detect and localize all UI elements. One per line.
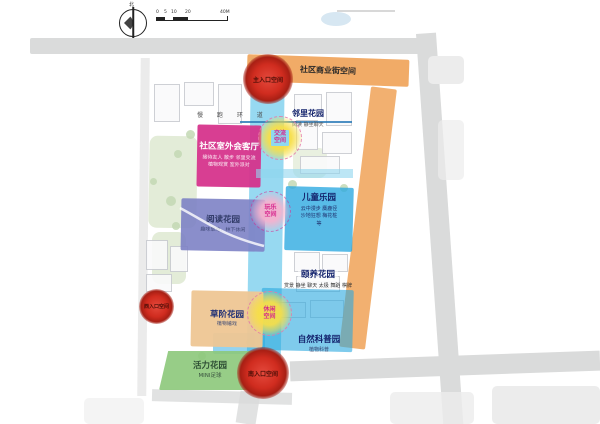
scale-bar-line (156, 20, 228, 21)
neighbor-garden-sub: 阅读 静坐聊天 (292, 122, 362, 130)
nature-garden-sub: 植物科普 (276, 347, 362, 355)
main-entrance-node: 主入口空间 (243, 54, 293, 104)
building-footprint (322, 132, 352, 154)
west-entrance-node: 西入口空间 (139, 289, 174, 324)
north-arrow-icon (119, 9, 147, 37)
south-entrance-node: 南入口空间 (237, 347, 289, 399)
grass-terrace-label: 草阶花园 (210, 310, 244, 321)
offsite-block (492, 386, 600, 424)
west-entrance-label: 西入口空间 (144, 303, 169, 310)
wellness-garden-sub: 赏景 静坐 聊天 太极 舞蹈 棋牌 (278, 283, 358, 291)
children-park-sub1: 云中漫步 麋鹿径 (287, 206, 351, 214)
scale-tick: 40M (220, 10, 230, 15)
outdoor-lounge-label: 社区室外会客厅 (199, 142, 259, 154)
scale-tick: 0 (156, 10, 159, 15)
road-left (137, 58, 150, 396)
children-park-label-group: 儿童乐园 云中漫步 麋鹿径 沙地狂想 梅花桩 等 (287, 193, 351, 228)
scale-bar: 0 5 10 20 40M (156, 10, 252, 24)
children-park-label: 儿童乐园 (287, 193, 351, 204)
offsite-block (390, 392, 474, 424)
building-footprint (184, 82, 214, 106)
building-footprint (154, 84, 180, 122)
road-top (30, 38, 428, 54)
neighbor-garden-label-group: 邻里花园 阅读 静坐聊天 (292, 109, 362, 130)
offsite-block (84, 398, 144, 424)
tree (174, 150, 182, 158)
scale-bar-segment (173, 17, 188, 21)
zone-outdoor-lounge: 社区室外会客厅 接待友人 散步 邻里交流 植物观赏 室外派对 (196, 124, 261, 187)
nature-garden-label: 自然科普园 (276, 335, 362, 346)
commercial-street-label: 社区商业街空间 (300, 65, 356, 77)
exchange-space-label: 交流 空间 (271, 130, 289, 146)
leisure-space-node: 休闲 空间 (247, 291, 292, 336)
scale-tick: 5 (164, 10, 167, 15)
vitality-garden-label: 活力花园 (193, 361, 227, 372)
grass-terrace-sub: 植物嬉戏 (217, 320, 237, 328)
tree (186, 130, 195, 139)
play-space-node: 玩乐 空间 (250, 191, 291, 232)
watermark-text (337, 10, 395, 12)
pond (321, 12, 351, 26)
scale-tick: 10 (171, 10, 177, 15)
scale-bar-segment (156, 17, 165, 21)
scale-bar-end (227, 16, 228, 21)
cross-corridor-link (256, 169, 353, 178)
scale-tick: 20 (185, 10, 191, 15)
offsite-block (438, 120, 464, 180)
jogging-loop-label: 慢 跑 环 道 (197, 110, 269, 119)
tree (150, 178, 157, 185)
offsite-block (428, 56, 464, 84)
vitality-garden-sub: MINI足球 (198, 372, 221, 380)
exchange-space-node: 交流 空间 (258, 116, 302, 160)
wellness-garden-label-group: 颐养花园 赏景 静坐 聊天 太极 舞蹈 棋牌 (278, 262, 358, 291)
wellness-garden-label: 颐养花园 (298, 270, 338, 281)
neighbor-garden-label: 邻里花园 (292, 109, 362, 119)
main-entrance-label: 主入口空间 (253, 75, 283, 84)
children-park-sub3: 等 (287, 221, 351, 229)
tree (166, 196, 176, 206)
nature-garden-label-group: 自然科普园 植物科普 (276, 335, 362, 354)
south-entrance-label: 南入口空间 (248, 369, 278, 378)
outdoor-lounge-sub2: 植物观赏 室外派对 (208, 162, 250, 170)
site-plan: 社区商业街空间 社区室外会客厅 接待友人 散步 邻里交流 植物观赏 室外派对 阅… (0, 0, 600, 424)
children-park-sub2: 沙地狂想 梅花桩 (287, 213, 351, 221)
building-footprint (146, 240, 168, 270)
